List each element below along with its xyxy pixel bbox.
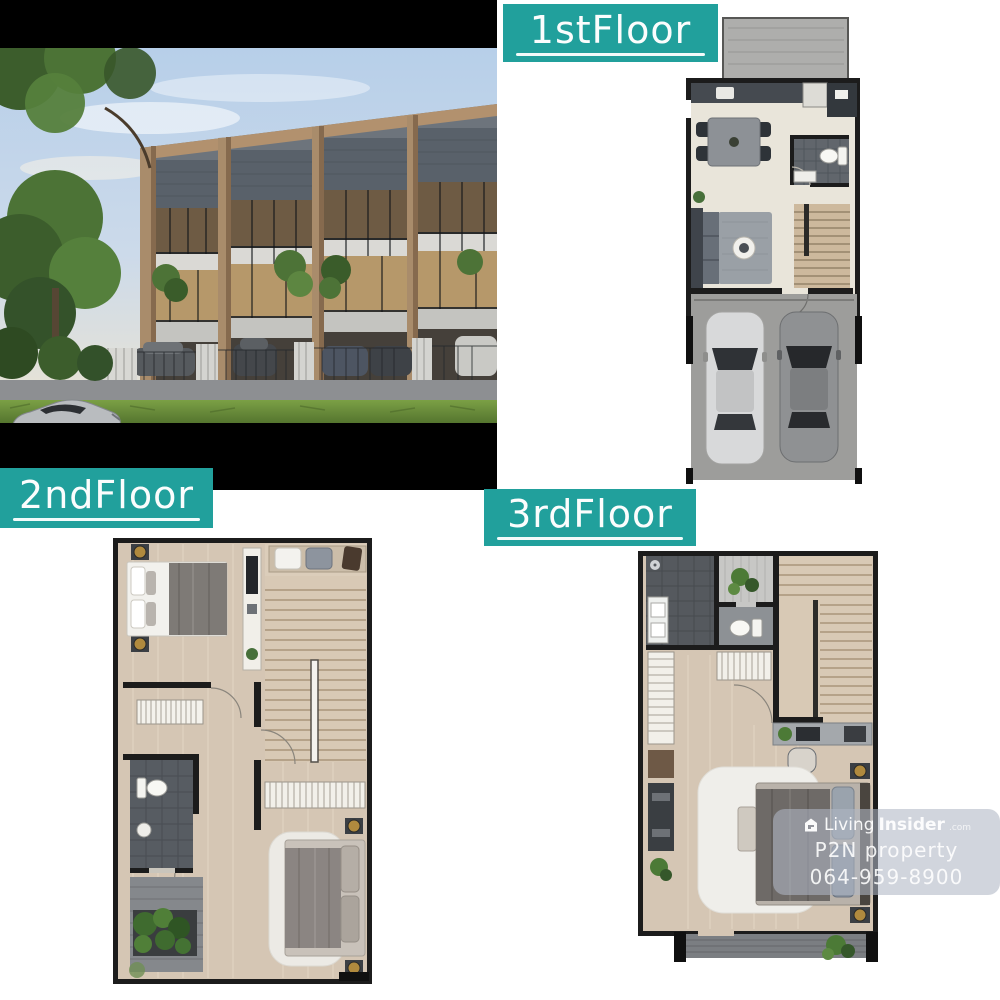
nightstand	[850, 907, 870, 923]
watermark-brand-tld: .com	[949, 823, 971, 833]
entry-door	[686, 100, 691, 118]
stairs	[794, 204, 850, 288]
tv-console	[243, 548, 261, 670]
nightstand	[131, 636, 149, 652]
car-gray	[777, 312, 841, 462]
bed	[127, 562, 227, 636]
balcony-top	[719, 556, 775, 607]
plant-icon	[693, 191, 705, 203]
wc	[719, 607, 773, 650]
plant-icon	[778, 727, 792, 741]
exterior-photo	[0, 0, 497, 490]
townhouse-render	[0, 48, 497, 423]
dresser	[648, 750, 674, 778]
plant-icon	[246, 648, 258, 660]
house-logo-icon	[802, 816, 820, 834]
stairs	[773, 553, 872, 723]
floor-plan-3rd	[638, 545, 879, 965]
nightstand	[850, 763, 870, 779]
walk-in-closet	[648, 652, 674, 881]
floor-label-2nd: 2ndFloor	[0, 468, 213, 528]
bathroom	[646, 556, 719, 650]
floor-plan-2nd	[113, 532, 372, 990]
watermark-brand-insider: Insider	[878, 815, 944, 835]
floor-label-1st: 1stFloor	[503, 4, 718, 62]
sink-icon	[137, 823, 151, 837]
floor-label-underline	[497, 537, 684, 540]
toilet-icon	[137, 778, 167, 798]
balcony-garden	[129, 877, 203, 978]
vanity	[794, 171, 816, 182]
sofa	[691, 208, 719, 288]
front-terrace	[723, 18, 848, 80]
floor-label-3rd-text: 3rdFloor	[507, 495, 673, 533]
nightstand	[131, 544, 149, 560]
bed	[285, 840, 365, 956]
floor-label-3rd: 3rdFloor	[484, 489, 696, 546]
nightstand	[345, 818, 363, 834]
toilet-icon	[730, 619, 762, 637]
bench	[738, 807, 756, 851]
balcony-bottom	[674, 931, 878, 962]
stairs	[265, 576, 366, 762]
floor-label-underline	[516, 53, 705, 56]
bathroom	[790, 137, 849, 185]
watermark-brand: LivingInsider.com	[802, 815, 971, 835]
car-silver	[703, 312, 767, 464]
floor-label-underline	[13, 518, 200, 521]
coffee-table	[733, 237, 755, 259]
watermark-phone: 064-959-8900	[810, 865, 964, 889]
toilet-icon	[820, 147, 847, 165]
laptop-icon	[796, 727, 820, 741]
floor-plan-1st	[686, 16, 862, 486]
floor-label-1st-text: 1stFloor	[530, 11, 691, 49]
floor-label-2nd-text: 2ndFloor	[19, 476, 194, 514]
garage	[686, 288, 862, 484]
watermark: LivingInsider.com P2N property 064-959-8…	[773, 809, 1000, 895]
listing-collage: 1stFloor 2ndFloor 3rdFloor	[0, 0, 1000, 1000]
watermark-brand-living: Living	[824, 815, 875, 835]
closet-hatched	[137, 700, 203, 724]
wardrobe-hatched	[265, 782, 365, 808]
watermark-agent: P2N property	[815, 838, 959, 862]
stair-landing	[265, 544, 366, 576]
